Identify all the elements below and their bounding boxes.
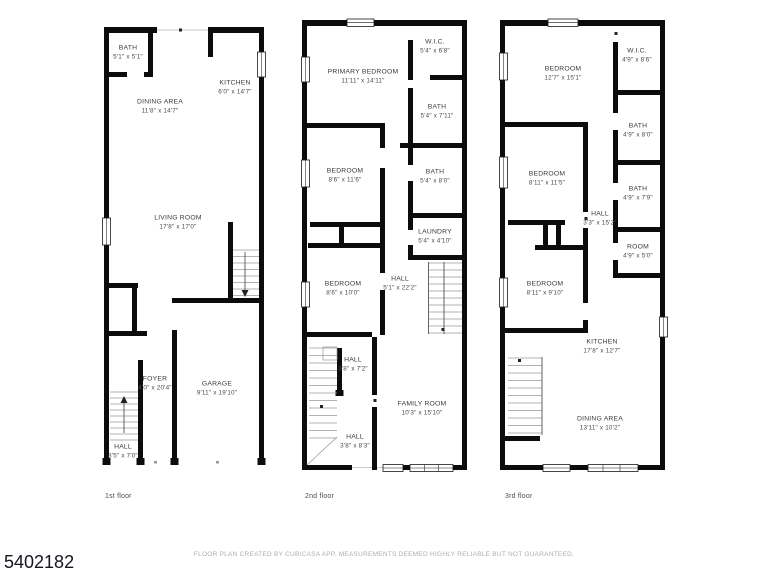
room-label-hall-lower-f2: HALL 3'8" x 8'3" bbox=[340, 434, 370, 451]
room-dims: 4'9" x 7'9" bbox=[623, 194, 653, 202]
floor-caption-1st: 1st floor bbox=[105, 493, 132, 500]
room-label-kitchen-f3: KITCHEN 17'8" x 12'7" bbox=[583, 339, 620, 356]
room-name: DINING AREA bbox=[137, 99, 183, 108]
room-dims: 17'8" x 17'0" bbox=[154, 223, 202, 231]
room-name: HALL bbox=[340, 434, 370, 443]
room-name: HALL bbox=[383, 276, 416, 285]
room-name: LIVING ROOM bbox=[154, 215, 202, 224]
room-label-wic-f3: W.I.C. 4'9" x 8'6" bbox=[622, 48, 652, 65]
room-label-bath-mid-f2: BATH 5'4" x 8'0" bbox=[420, 169, 450, 186]
room-name: KITCHEN bbox=[218, 80, 251, 89]
room-label-bath-f1: BATH 5'1" x 5'1" bbox=[113, 45, 143, 62]
room-dims: 3'3" x 15'2" bbox=[583, 219, 616, 227]
room-dims: 8'11" x 11'5" bbox=[529, 179, 566, 187]
room-dims: 11'8" x 14'7" bbox=[137, 107, 183, 115]
room-dims: 10'3" x 15'10" bbox=[398, 409, 447, 417]
room-label-dining-f3: DINING AREA 13'11" x 10'2" bbox=[577, 416, 623, 433]
room-dims: 3'8" x 7'2" bbox=[338, 365, 368, 373]
room-dims: 4'9" x 8'6" bbox=[622, 56, 652, 64]
room-dims: 8'6" x 11'6" bbox=[327, 176, 364, 184]
room-name: FOYER bbox=[138, 376, 171, 385]
room-label-bedroom3-f2: BEDROOM 8'6" x 10'0" bbox=[325, 281, 362, 298]
room-dims: 5'4" x 4'10" bbox=[418, 237, 452, 245]
room-dims: 17'8" x 12'7" bbox=[583, 347, 620, 355]
room-name: BEDROOM bbox=[325, 281, 362, 290]
room-label-bath-upper-f2: BATH 5'4" x 7'11" bbox=[421, 104, 454, 121]
room-label-hall-f1: HALL 3'5" x 7'0" bbox=[108, 444, 138, 461]
room-name: HALL bbox=[108, 444, 138, 453]
room-dims: 5'1" x 5'1" bbox=[113, 53, 143, 61]
room-label-room-f3: ROOM 4'9" x 5'0" bbox=[623, 244, 653, 261]
room-label-hall-f3: HALL 3'3" x 15'2" bbox=[583, 211, 616, 228]
room-name: W.I.C. bbox=[420, 39, 450, 48]
room-name: FAMILY ROOM bbox=[398, 401, 447, 410]
room-name: BATH bbox=[623, 123, 653, 132]
room-dims: 4'0" x 20'4" bbox=[138, 384, 171, 392]
room-name: ROOM bbox=[623, 244, 653, 253]
room-name: W.I.C. bbox=[622, 48, 652, 57]
room-name: LAUNDRY bbox=[418, 229, 452, 238]
plan-id-number: 5402182 bbox=[4, 552, 74, 573]
room-name: HALL bbox=[338, 357, 368, 366]
room-dims: 3'8" x 8'3" bbox=[340, 442, 370, 450]
room-label-bedroom3-f3: BEDROOM 8'11" x 9'10" bbox=[527, 281, 564, 298]
room-label-bedroom2-f3: BEDROOM 8'11" x 11'5" bbox=[529, 171, 566, 188]
room-label-bedroom1-f3: BEDROOM 12'7" x 15'1" bbox=[544, 66, 581, 83]
room-name: BATH bbox=[623, 186, 653, 195]
room-label-kitchen-f1: KITCHEN 6'0" x 14'7" bbox=[218, 80, 251, 97]
room-label-hall-main-f2: HALL 5'1" x 22'2" bbox=[383, 276, 416, 293]
room-dims: 13'11" x 10'2" bbox=[577, 424, 623, 432]
room-dims: 12'7" x 15'1" bbox=[544, 74, 581, 82]
room-dims: 9'11" x 19'10" bbox=[197, 389, 237, 397]
room-name: BATH bbox=[421, 104, 454, 113]
room-name: PRIMARY BEDROOM bbox=[328, 69, 399, 78]
room-name: GARAGE bbox=[197, 381, 237, 390]
room-dims: 5'1" x 22'2" bbox=[383, 284, 416, 292]
room-dims: 3'5" x 7'0" bbox=[108, 452, 138, 460]
floor-caption-2nd: 2nd floor bbox=[305, 493, 334, 500]
room-dims: 8'11" x 9'10" bbox=[527, 289, 564, 297]
room-name: HALL bbox=[583, 211, 616, 220]
room-dims: 5'4" x 6'8" bbox=[420, 47, 450, 55]
room-label-bath-mid-f3: BATH 4'9" x 7'9" bbox=[623, 186, 653, 203]
room-label-dining-f1: DINING AREA 11'8" x 14'7" bbox=[137, 99, 183, 116]
room-label-garage-f1: GARAGE 9'11" x 19'10" bbox=[197, 381, 237, 398]
room-label-living-f1: LIVING ROOM 17'8" x 17'0" bbox=[154, 215, 202, 232]
room-label-primary-bedroom-f2: PRIMARY BEDROOM 11'11" x 14'11" bbox=[328, 69, 399, 86]
floor-caption-3rd: 3rd floor bbox=[505, 493, 532, 500]
disclaimer-text: FLOOR PLAN CREATED BY CUBICASA APP. MEAS… bbox=[0, 551, 768, 558]
room-name: BATH bbox=[113, 45, 143, 54]
room-name: DINING AREA bbox=[577, 416, 623, 425]
room-dims: 5'4" x 7'11" bbox=[421, 112, 454, 120]
room-name: BATH bbox=[420, 169, 450, 178]
room-name: BEDROOM bbox=[327, 168, 364, 177]
room-label-laundry-f2: LAUNDRY 5'4" x 4'10" bbox=[418, 229, 452, 246]
room-name: BEDROOM bbox=[544, 66, 581, 75]
room-label-bedroom2-f2: BEDROOM 8'6" x 11'6" bbox=[327, 168, 364, 185]
room-dims: 6'0" x 14'7" bbox=[218, 88, 251, 96]
room-dims: 4'9" x 5'0" bbox=[623, 252, 653, 260]
room-dims: 5'4" x 8'0" bbox=[420, 177, 450, 185]
room-dims: 4'9" x 8'0" bbox=[623, 131, 653, 139]
floor-plan-sheet: BATH 5'1" x 5'1" DINING AREA 11'8" x 14'… bbox=[0, 0, 768, 576]
room-label-foyer-f1: FOYER 4'0" x 20'4" bbox=[138, 376, 171, 393]
room-name: BEDROOM bbox=[529, 171, 566, 180]
room-label-family-room-f2: FAMILY ROOM 10'3" x 15'10" bbox=[398, 401, 447, 418]
room-label-hall-upper-f2: HALL 3'8" x 7'2" bbox=[338, 357, 368, 374]
room-dims: 8'6" x 10'0" bbox=[325, 289, 362, 297]
room-name: BEDROOM bbox=[527, 281, 564, 290]
room-label-bath-upper-f3: BATH 4'9" x 8'0" bbox=[623, 123, 653, 140]
room-name: KITCHEN bbox=[583, 339, 620, 348]
room-label-wic-f2: W.I.C. 5'4" x 6'8" bbox=[420, 39, 450, 56]
room-dims: 11'11" x 14'11" bbox=[328, 77, 399, 85]
